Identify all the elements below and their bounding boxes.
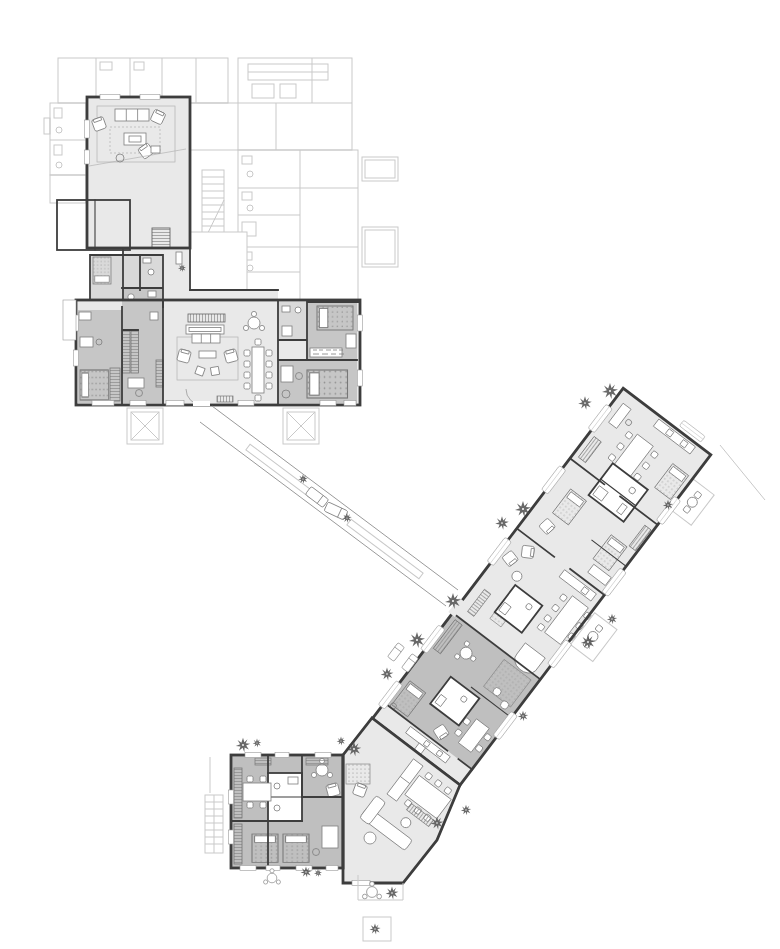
floor-plan-canvas bbox=[0, 0, 780, 949]
south-stair bbox=[205, 795, 223, 853]
floor-plan-page bbox=[0, 0, 780, 949]
skylight-planter-2 bbox=[283, 408, 319, 444]
courtyard-void bbox=[190, 232, 247, 292]
balcony-box-west bbox=[63, 300, 76, 340]
skylight-planter-1 bbox=[127, 408, 163, 444]
